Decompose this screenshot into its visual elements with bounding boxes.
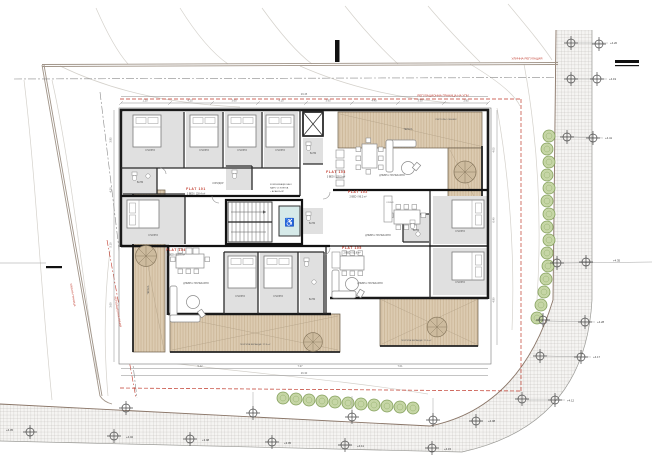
room-bedroom-6: СПАЛНЯ — [455, 230, 465, 233]
core-label-3: + АСАНСЬОР — [270, 190, 285, 193]
flat-102-label: FLAT 102 — [348, 190, 368, 194]
dim-top-5: 3.95 — [325, 99, 331, 103]
dim-top-7: 3.30 — [417, 99, 423, 103]
level-label-10: +4.02 — [126, 435, 134, 439]
room-bedroom-1: СПАЛНЯ — [145, 149, 155, 152]
level-label-9: +4.05 — [6, 428, 14, 432]
dim-left-2: 4.20 — [109, 187, 113, 193]
dim-left-3: 5.10 — [109, 242, 113, 248]
dim-bottom-1: 5.42 — [197, 364, 203, 368]
level-label-14: +4.15 — [444, 447, 452, 451]
dim-top-3: 3.60 — [231, 99, 237, 103]
room-bedroom-8: СПАЛНЯ — [235, 295, 245, 298]
level-label-13: +4.11 — [357, 444, 364, 448]
tree-terrace-tr — [454, 161, 476, 183]
building: ♿ — [119, 108, 491, 364]
room-terrace-1: ТЕРАСА — [404, 128, 413, 131]
tree-terrace-bl — [304, 333, 323, 352]
datum-bar-left — [46, 266, 62, 268]
room-bedroom-7: СПАЛНЯ — [455, 281, 465, 284]
room-veranda-2: ПОКРИТА ВЕРАНДА / 21.4 m² — [401, 339, 432, 342]
room-living-3: ДНЕВНА-ТРАПЕЗАРИЯ — [183, 282, 209, 285]
level-label-7: +4.12 — [567, 398, 575, 402]
flat-103-info: 3 BED / 135.5 m² — [327, 175, 346, 178]
room-living-4: ДНЕВНА-ТРАПЕЗАРИЯ — [357, 282, 383, 285]
flat-101-info: 3 BED / 128.4 m² — [187, 192, 206, 195]
street-boundary-label: УЛИЧНА ГРАНИЦА — [69, 283, 77, 307]
pergola-label: ПЕРГОЛА / СЕННИК — [436, 118, 458, 121]
level-label-12: +3.95 — [284, 441, 292, 445]
street-regulation-label: УЛИЧНА РЕГУЛАЦИЯ — [512, 57, 543, 61]
dim-top-1: 1.20 — [142, 99, 148, 103]
dim-right-2: 6.40 — [492, 217, 496, 223]
room-bedroom-4: СПАЛНЯ — [275, 149, 285, 152]
level-label-6: +4.17 — [593, 355, 601, 359]
hedge-bottom — [277, 392, 419, 414]
flat-101-label: FLAT 101 — [186, 187, 206, 191]
room-bath-1: БАНЯ — [137, 181, 144, 184]
room-bedroom-9: СПАЛНЯ — [273, 295, 283, 298]
dim-top-2: 4.25 — [187, 99, 193, 103]
flat-102-info: 2 BED / 96.2 m² — [349, 195, 366, 198]
dining-table-flat105 — [340, 251, 364, 276]
section-marker-top — [335, 40, 340, 62]
flat-105-info: 2 BED / 92.8 m² — [343, 251, 360, 254]
dim-bottom-3: 7.01 — [397, 364, 403, 368]
room-bedroom-2: СПАЛНЯ — [199, 149, 209, 152]
room-bath-5: БАНЯ — [309, 298, 316, 301]
level-label-5: +4.28 — [597, 320, 605, 324]
datum-bar-right-2 — [615, 65, 639, 66]
tree-terrace-br — [427, 317, 447, 337]
flat-104-info: 3 BED / 118.6 m² — [167, 253, 185, 256]
room-bedroom-5: СПАЛНЯ — [148, 234, 158, 237]
level-label-3: +4.41 — [605, 136, 613, 140]
room-terrace-2: ТЕРАСА — [147, 285, 150, 294]
stair-core — [228, 202, 272, 242]
level-label-2: +4.19 — [609, 77, 617, 81]
dim-right-1: 4.05 — [492, 147, 496, 153]
room-bath-3: БАНЯ — [309, 222, 316, 225]
dim-bottom-total: 26.30 — [301, 371, 308, 375]
dim-top-4: 4.10 — [278, 99, 284, 103]
dim-left-4: 3.60 — [109, 302, 113, 308]
core-label-2: ЯДРО СТ.КЛЕТКА — [270, 187, 289, 190]
plot-regulation-label: РЕГУЛАЦИОННА ГРАНИЦА НА УПИ — [417, 94, 468, 98]
level-label-11: +3.98 — [202, 438, 210, 442]
flat-104-label: FLAT 104 — [166, 248, 186, 252]
hedge-right — [531, 130, 555, 324]
dim-left-1: 3.85 — [109, 137, 113, 143]
level-label-4: +4.35 — [613, 259, 621, 263]
tree-deck-left — [136, 246, 157, 267]
floor-plan-canvas: ♿ — [0, 0, 662, 470]
room-living-1: ДНЕВНА-ТРАПЕЗАРИЯ — [379, 174, 405, 177]
room-bath-2: БАНЯ — [310, 152, 317, 155]
flat-103-label: FLAT 103 — [326, 170, 346, 174]
flat-105-label: FLAT 105 — [342, 246, 362, 250]
room-veranda-1: ПОКРИТА ВЕРАНДА / 27.8 m² — [240, 343, 271, 346]
wheelchair-icon: ♿ — [285, 217, 295, 227]
room-bedroom-3: СПАЛНЯ — [237, 149, 247, 152]
room-bath-4: БАНЯ — [413, 229, 420, 232]
level-label-1: +4.20 — [610, 41, 618, 45]
dim-right-3: 4.80 — [492, 297, 496, 303]
room-living-2: ДНЕВНА-ТРАПЕЗАРИЯ — [365, 234, 391, 237]
level-label-8: +4.08 — [488, 419, 496, 423]
dim-top-8: 2.85 — [463, 99, 469, 103]
dim-top-6: 4.40 — [371, 99, 377, 103]
room-corridor: КОРИДОР — [212, 183, 224, 185]
dim-bottom-2: 7.37 — [297, 364, 303, 368]
dim-top-total: 29.45 — [301, 92, 308, 96]
site-plan-svg: ♿ — [0, 0, 662, 470]
core-label-1: КОМУНИКАЦИОННО — [270, 183, 292, 186]
datum-bar-right-1 — [615, 60, 639, 63]
room-kitchen: КУХНЯ — [387, 202, 394, 204]
